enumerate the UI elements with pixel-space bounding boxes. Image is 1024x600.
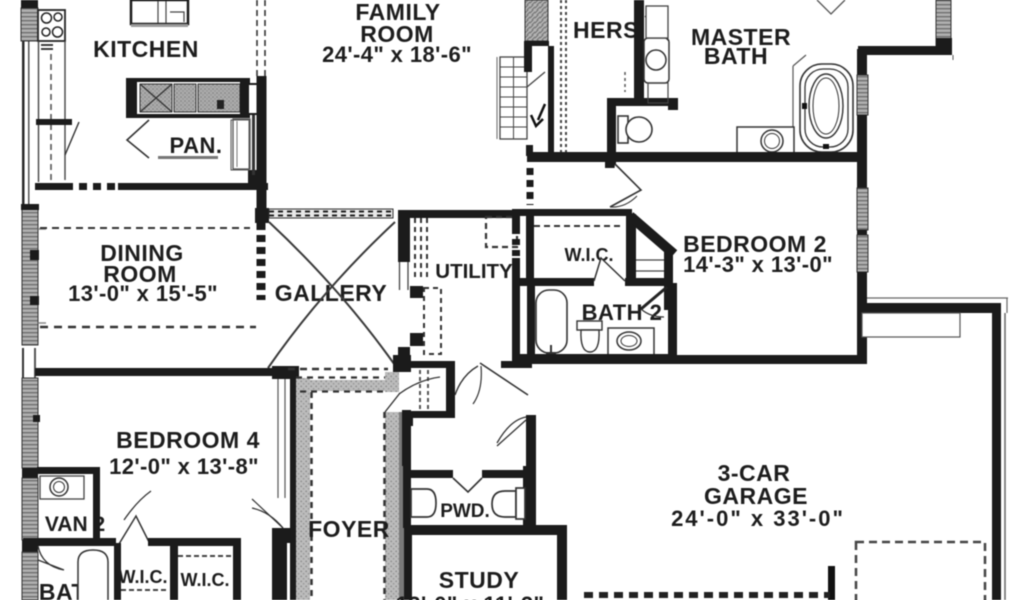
svg-text:W.I.C.: W.I.C.: [119, 567, 168, 587]
svg-text:BATH: BATH: [704, 43, 768, 69]
svg-text:W.I.C.: W.I.C.: [181, 570, 230, 590]
svg-text:STUDY: STUDY: [439, 567, 519, 593]
svg-text:HERS: HERS: [573, 17, 639, 43]
svg-text:13'-0" x 11'-2": 13'-0" x 11'-2": [396, 592, 545, 600]
svg-text:PAN.: PAN.: [170, 133, 223, 158]
svg-text:12'-0" x 13'-8": 12'-0" x 13'-8": [109, 454, 259, 479]
svg-text:PWD.: PWD.: [440, 501, 490, 522]
svg-text:14'-3" x 13'-0": 14'-3" x 13'-0": [683, 252, 833, 277]
svg-text:24'-0" x 33'-0": 24'-0" x 33'-0": [671, 506, 845, 531]
svg-text:KITCHEN: KITCHEN: [93, 36, 199, 62]
svg-text:BEDROOM 4: BEDROOM 4: [116, 427, 260, 453]
svg-text:24'-4" x 18'-6": 24'-4" x 18'-6": [322, 42, 472, 67]
svg-text:13'-0" x 15'-5": 13'-0" x 15'-5": [68, 281, 218, 306]
svg-text:UTILITY: UTILITY: [435, 260, 513, 283]
svg-text:FOYER: FOYER: [308, 516, 390, 542]
